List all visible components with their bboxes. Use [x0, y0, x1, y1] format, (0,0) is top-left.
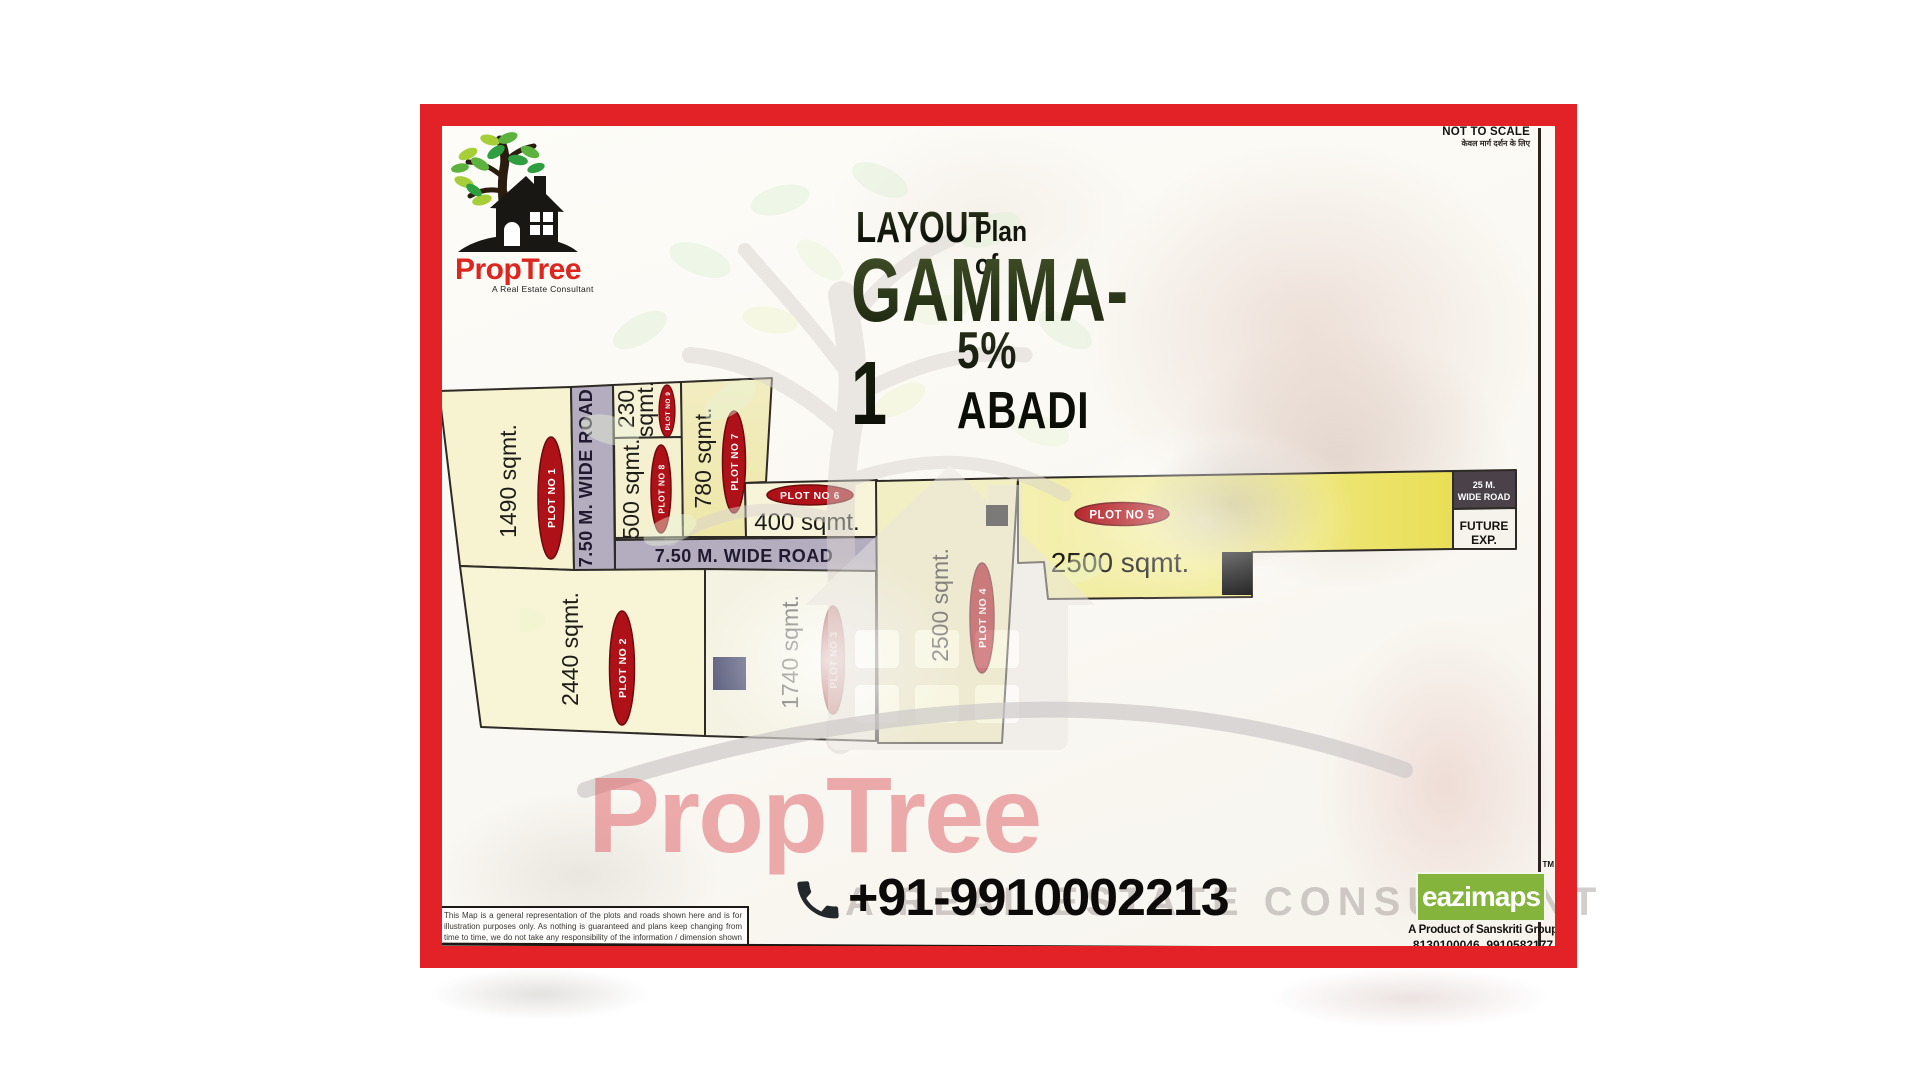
proptree-logo [446, 130, 596, 262]
phone-number: +91-9910002213 [848, 868, 1229, 928]
sheet-border-right [1538, 128, 1541, 948]
plot-5-area: 2500 sqmt. [1051, 547, 1190, 578]
plot-4-badge-label: PLOT NO 4 [977, 588, 989, 648]
future-exp-label-line2: EXP. [1471, 533, 1497, 547]
plot-4-area: 2500 sqmt. [927, 548, 953, 662]
phone-icon [790, 872, 846, 928]
plot-7-badge-label: PLOT NO 7 [730, 433, 741, 490]
eazimaps-tm: TM [1542, 860, 1554, 869]
scan-smudge-outside [1270, 968, 1550, 1028]
plot-2-area: 2440 sqmt. [557, 592, 583, 706]
not-to-scale-subtext: केवल मार्ग दर्शन के लिए [1418, 138, 1530, 149]
eazimaps-logo: eazimaps [1416, 872, 1546, 922]
plot-2-badge-label: PLOT NO 2 [617, 638, 629, 698]
plot-7-area: 780 sqmt. [690, 408, 716, 509]
brand-name: PropTree [455, 253, 615, 287]
publisher-line2: 8130100046, 9910582177 [1408, 938, 1558, 952]
plot-9-badge-label: PLOT NO 9 [665, 392, 672, 431]
plot-5-badge-label: PLOT NO 5 [1089, 510, 1154, 522]
plot-1-badge-label: PLOT NO 1 [546, 468, 558, 528]
not-to-scale-block: NOT TO SCALE केवल मार्ग दर्शन के लिए [1418, 126, 1530, 149]
plot-3-area: 1740 sqmt. [777, 595, 803, 709]
road-25m-label-line2: WIDE ROAD [1458, 492, 1511, 502]
blue-marker-plot3 [713, 657, 746, 690]
layout-poster: 7.50 M. WIDE ROAD 7.50 M. WIDE ROAD 1490… [0, 0, 1920, 1080]
eazimaps-wordmark: eazimaps [1422, 881, 1540, 913]
black-marker-plot5 [1222, 552, 1252, 595]
plot-6-area: 400 sqmt. [754, 509, 859, 536]
plot-6-badge-label: PLOT NO 6 [780, 490, 840, 502]
publisher-line1: A Product of Sanskriti Group [1408, 924, 1558, 936]
brand-tagline: A Real Estate Consultant [492, 284, 594, 294]
road-25m-label-line1: 25 M. [1473, 480, 1496, 490]
not-to-scale-label: NOT TO SCALE [1418, 126, 1530, 138]
black-marker-plot4 [986, 505, 1008, 526]
title-abadi: 5% ABADI [957, 321, 1089, 441]
road-vertical-label: 7.50 M. WIDE ROAD [576, 389, 596, 568]
future-exp-label-line1: FUTURE [1460, 519, 1509, 533]
plot-9-area-line2: sqmt. [632, 381, 658, 437]
road-horizontal-label: 7.50 M. WIDE ROAD [655, 546, 834, 566]
plot-8-area: 500 sqmt. [618, 439, 644, 540]
plot-8-badge-label: PLOT NO 8 [657, 464, 667, 513]
plot-1-area: 1490 sqmt. [495, 424, 521, 538]
scan-smudge-outside [430, 968, 650, 1020]
plot-3-badge-label: PLOT NO 3 [829, 631, 840, 688]
